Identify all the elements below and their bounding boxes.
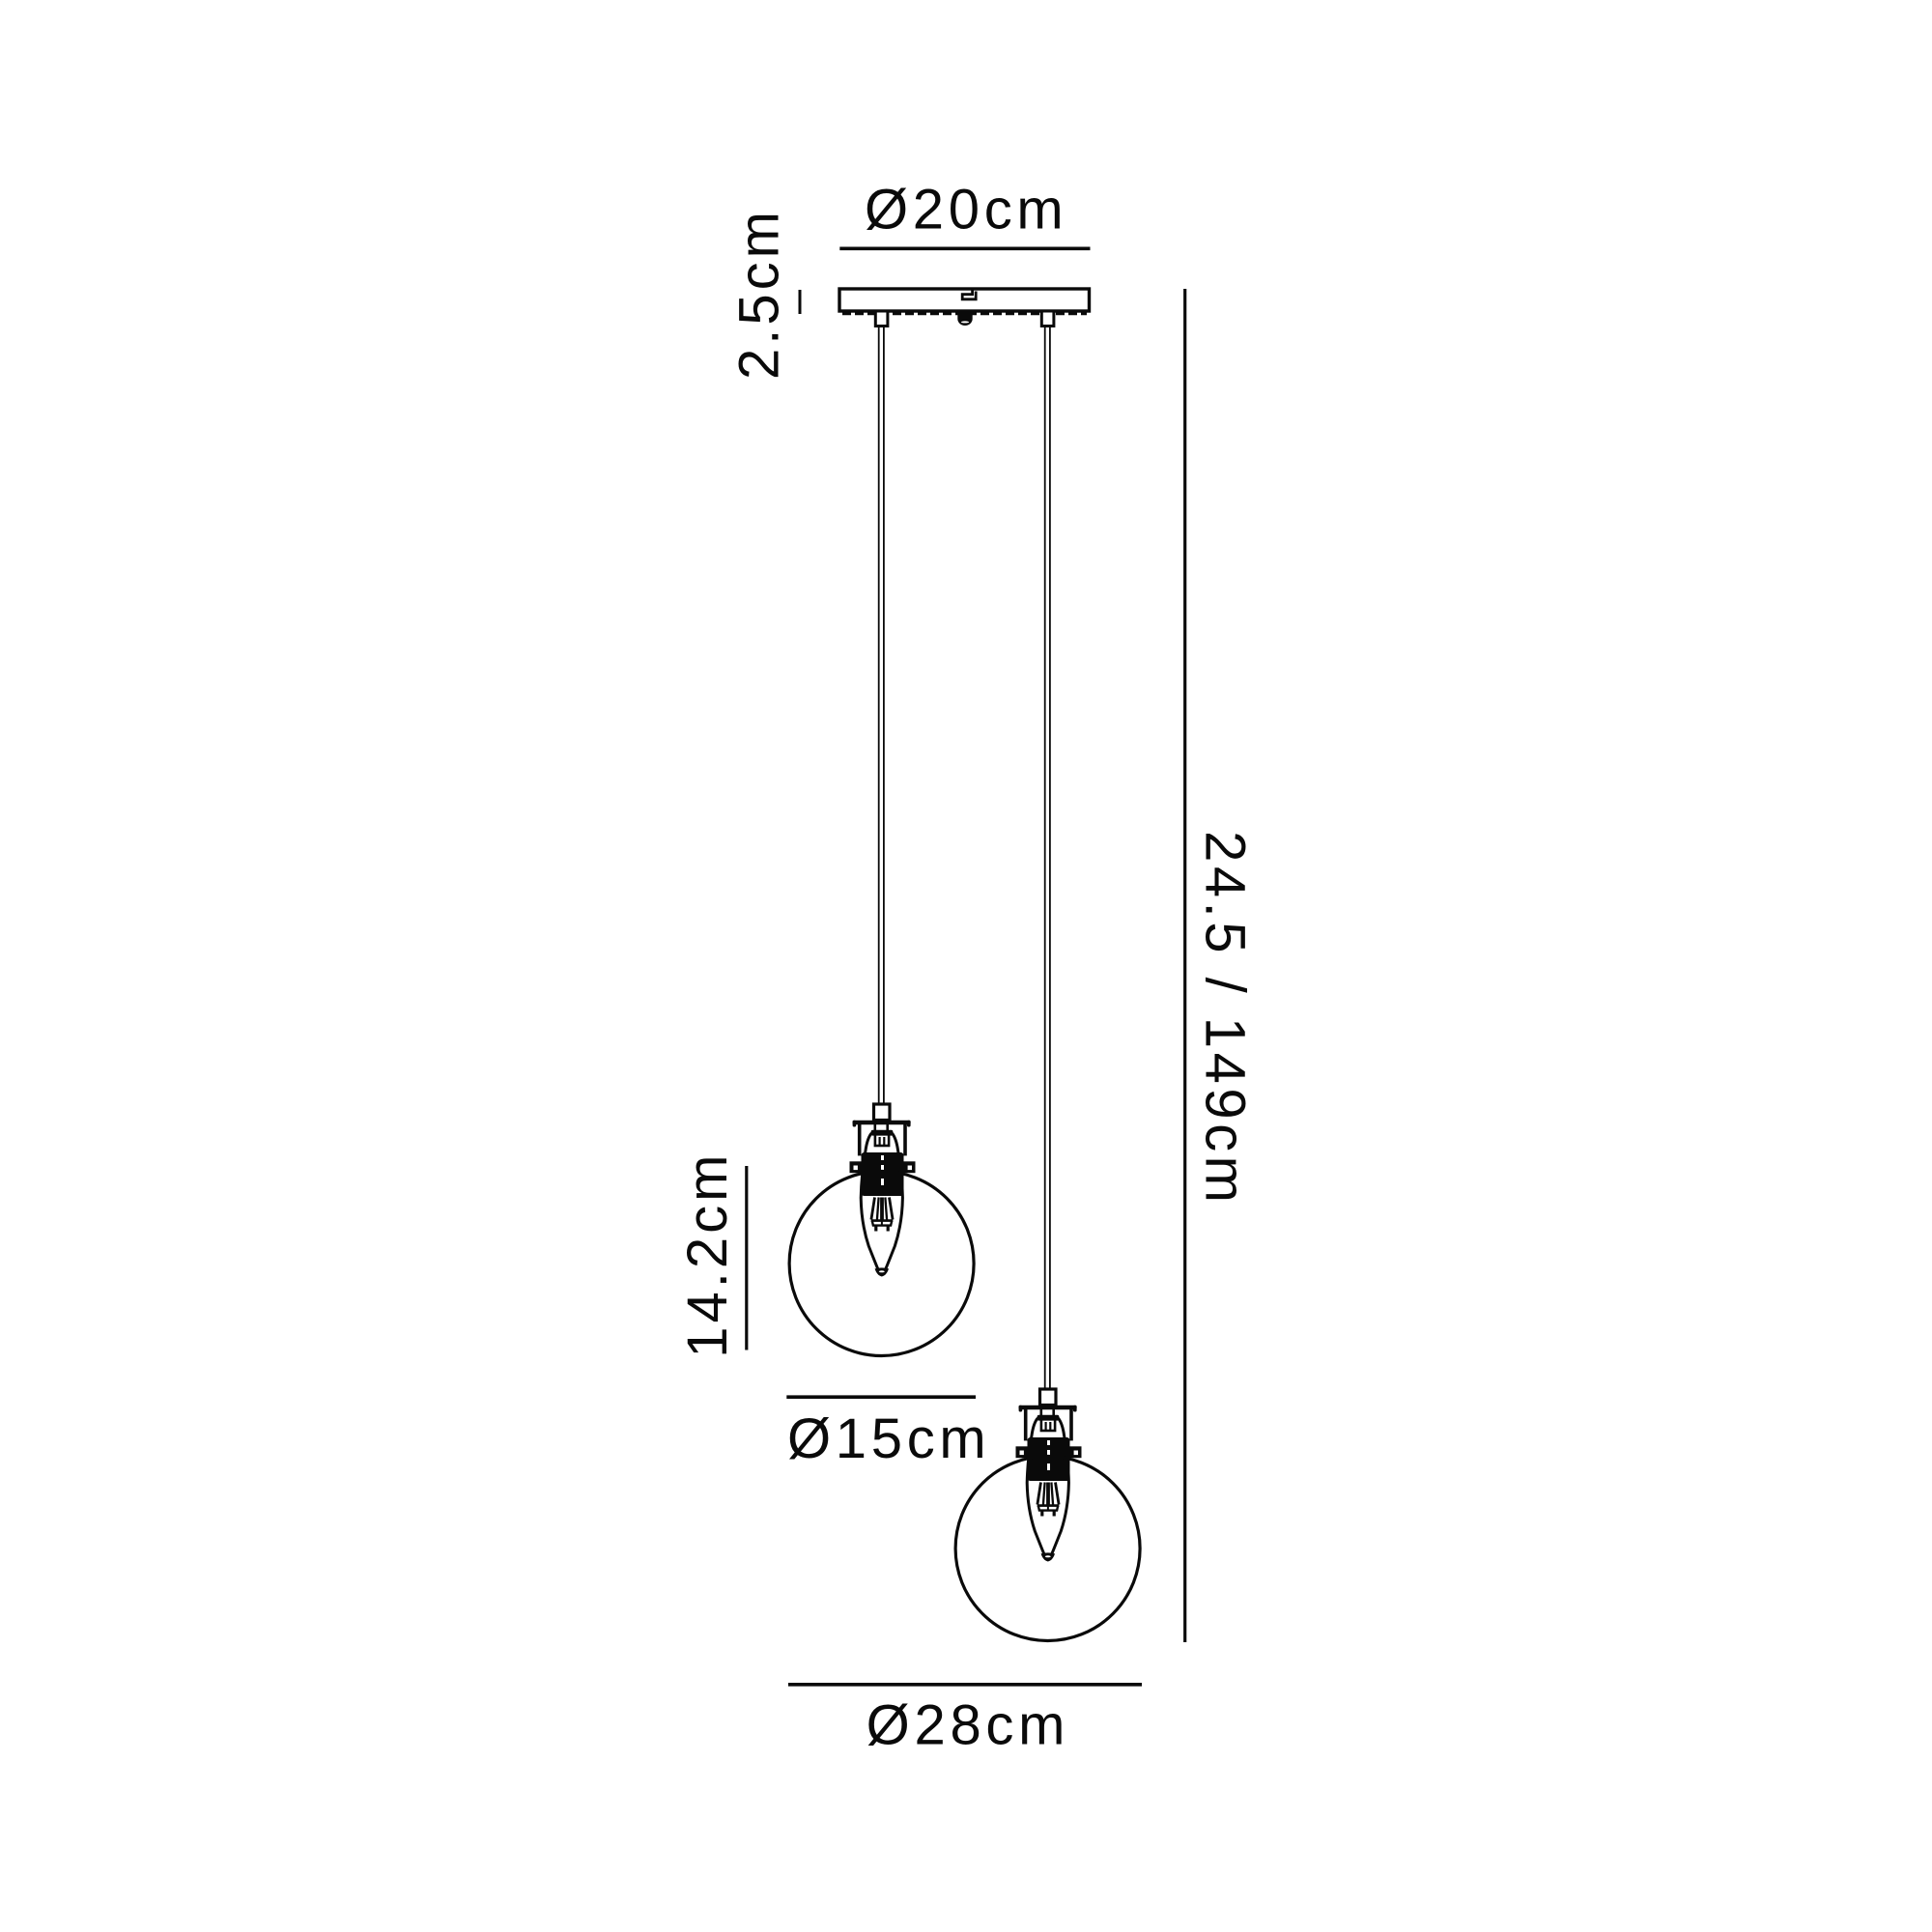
svg-text:2.5cm: 2.5cm bbox=[728, 208, 791, 380]
svg-text:Ø15cm: Ø15cm bbox=[787, 1407, 990, 1470]
svg-text:14.2cm: 14.2cm bbox=[676, 1151, 739, 1358]
svg-text:Ø28cm: Ø28cm bbox=[867, 1694, 1069, 1757]
svg-text:Ø20cm: Ø20cm bbox=[865, 179, 1067, 241]
svg-text:24.5 / 149cm: 24.5 / 149cm bbox=[1194, 831, 1257, 1207]
